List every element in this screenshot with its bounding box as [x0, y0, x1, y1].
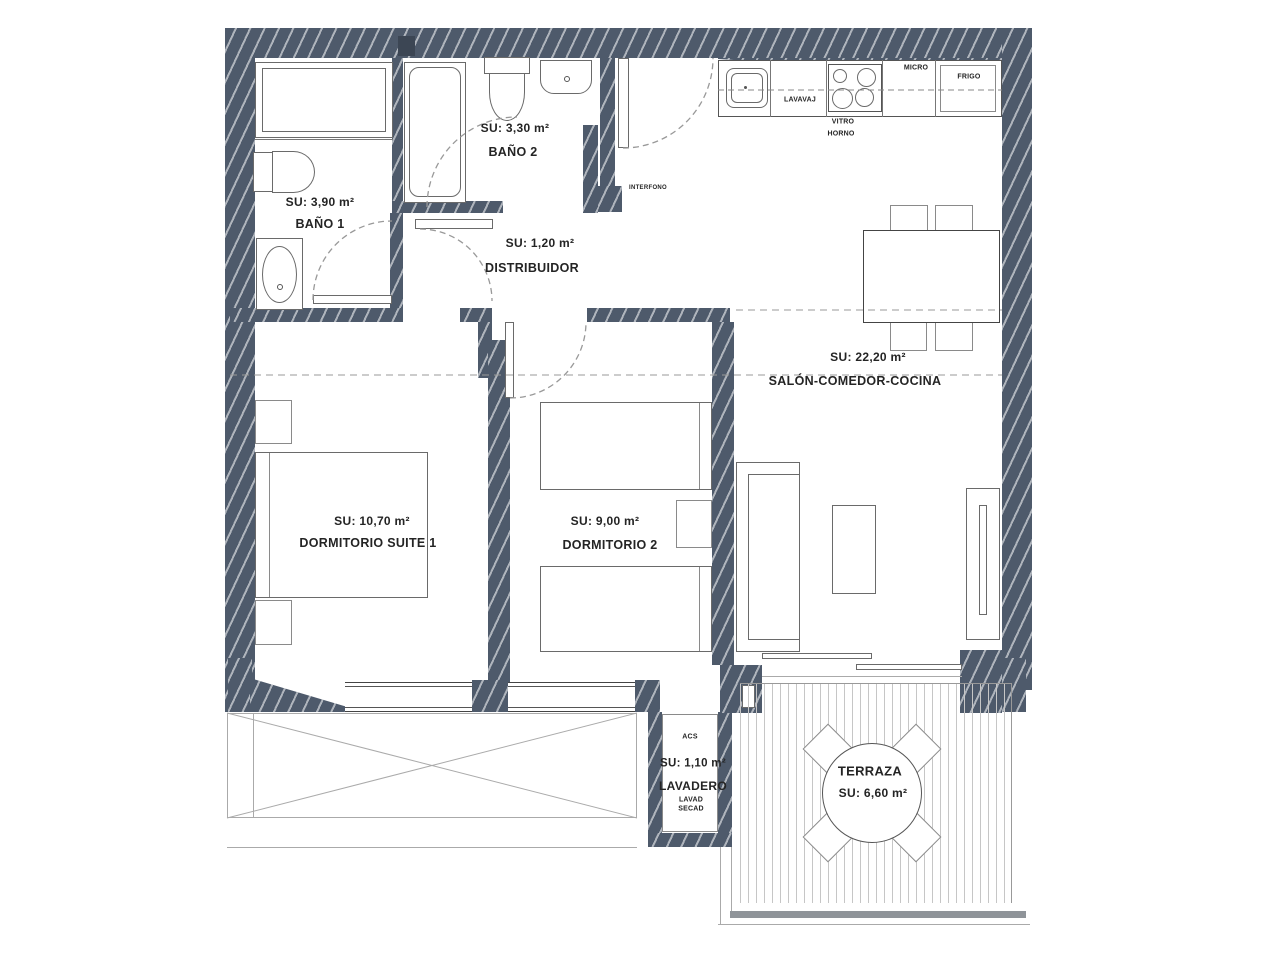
banyo1-name-label: BAÑO 1: [295, 218, 344, 231]
distribuidor-name-label: DISTRIBUIDOR: [485, 262, 579, 275]
wall-lavadero-left: [648, 712, 662, 842]
door-leaf-dorm2: [505, 322, 514, 398]
door-arc-banyo1: [313, 221, 392, 300]
hob-burner: [855, 88, 874, 107]
window-dorm2: [508, 682, 635, 712]
door-arc-dorm2: [510, 322, 586, 398]
shower-basin: [409, 67, 461, 197]
wall-window-pillar: [472, 680, 508, 712]
wall-entry-divider: [600, 58, 615, 205]
sliding-door-panel-right: [856, 664, 962, 670]
hob-burner: [833, 69, 847, 83]
banyo1-shelf-line: [255, 139, 393, 140]
nightstand: [676, 500, 712, 548]
bed-single: [540, 566, 712, 652]
wall-top: [225, 28, 1032, 58]
washbasin2-drain: [564, 76, 570, 82]
floor-plan: SU: 3,90 m² BAÑO 1 SU: 3,30 m² BAÑO 2 SU…: [0, 0, 1280, 960]
terraza-area-label: SU: 6,60 m²: [839, 787, 908, 799]
wall-lavadero-right: [718, 712, 732, 842]
counter-divider: [882, 60, 883, 117]
wall-lavadero-bottom: [648, 833, 732, 847]
kitchen-frigo-label: FRIGO: [957, 74, 980, 81]
lavadero-area-label: SU: 1,10 m²: [660, 758, 726, 770]
wall-bottom-left-slope: [250, 678, 347, 712]
door-leaf-banyo1: [313, 295, 392, 304]
terraza-name-label: TERRAZA: [838, 765, 902, 778]
toilet-tank: [253, 152, 273, 192]
kitchen-sink-drain: [744, 86, 747, 89]
toilet2-bowl: [489, 73, 525, 121]
wall-dorm2-right: [712, 322, 734, 665]
nightstand: [255, 400, 292, 444]
lavadero-acs-label: ACS: [682, 734, 697, 741]
fridge: [940, 65, 996, 112]
wall-banyo-divider: [392, 58, 403, 203]
wall-top-bump: [398, 36, 415, 56]
lavadero-secad-label: SECAD: [678, 806, 704, 813]
kitchen-sink-basin: [731, 73, 763, 103]
bathtub-basin: [262, 68, 386, 132]
door-leaf-entrance: [618, 58, 629, 148]
salon-area-label: SU: 22,20 m²: [830, 351, 906, 363]
door-leaf-distribuidor: [415, 219, 493, 229]
banyo2-name-label: BAÑO 2: [488, 146, 537, 159]
kitchen-micro-label: MICRO: [904, 65, 928, 72]
crossed-area: [227, 713, 637, 818]
wall-window-pillar-2: [635, 680, 660, 712]
dorm2-area-label: SU: 9,00 m²: [571, 515, 640, 527]
dining-table: [863, 230, 1000, 323]
toilet-bowl: [272, 151, 315, 193]
terrace-border-thick: [730, 911, 1026, 918]
wall-left: [225, 28, 255, 712]
wall-right: [1002, 28, 1032, 690]
toilet2-tank: [484, 57, 530, 74]
nightstand: [255, 600, 292, 645]
door-arc-entrance: [623, 58, 713, 148]
hob-burner: [832, 88, 853, 109]
tv-screen: [979, 505, 987, 615]
bed-single: [540, 402, 712, 490]
terrace-border-thin: [718, 924, 1030, 925]
dorm1-area-label: SU: 10,70 m²: [334, 515, 410, 527]
window-dorm1: [345, 682, 472, 712]
terrace-left-line-1: [720, 847, 721, 925]
door-arc-distribuidor: [420, 229, 492, 301]
lavadero-lavad-label: LAVAD: [679, 797, 703, 804]
counter-divider: [826, 60, 827, 117]
wall-bottom-left-pillar: [228, 658, 252, 712]
distribuidor-area-label: SU: 1,20 m²: [506, 237, 575, 249]
wall-banyo2-stub: [583, 125, 598, 213]
banyo2-area-label: SU: 3,30 m²: [481, 122, 550, 134]
kitchen-lavavaj-label: LAVAVAJ: [784, 97, 816, 104]
lavadero-cabinet: [662, 714, 718, 832]
crossed-area-divider: [253, 713, 254, 818]
kitchen-horno-label: HORNO: [827, 131, 854, 138]
sliding-door-sill: [762, 676, 962, 677]
wall-interfono-box: [597, 186, 622, 212]
dorm1-name-label: DORMITORIO SUITE 1: [299, 537, 436, 550]
wall-dorm1-top-stub: [460, 308, 492, 322]
counter-divider: [935, 60, 936, 117]
lower-ground-line: [227, 847, 637, 848]
kitchen-vitro-label: VITRO: [832, 119, 854, 126]
sofa-seat: [748, 474, 800, 640]
terrace-left-line-2: [731, 847, 732, 911]
counter-divider: [770, 60, 771, 117]
washbasin-bowl: [262, 246, 297, 303]
salon-name-label: SALÓN-COMEDOR-COCINA: [769, 375, 942, 388]
interfono-label: INTERFONO: [629, 185, 667, 191]
wall-banyo1-jamb: [390, 213, 403, 322]
washbasin-drain: [277, 284, 283, 290]
hob-burner: [857, 68, 876, 87]
wall-dorm1-top: [230, 308, 403, 322]
coffee-table: [832, 505, 876, 594]
dorm2-name-label: DORMITORIO 2: [562, 539, 657, 552]
lavadero-name-label: LAVADERO: [659, 780, 727, 792]
sliding-door-panel-left: [762, 653, 872, 659]
wall-dorm2-top: [587, 308, 730, 322]
banyo1-area-label: SU: 3,90 m²: [286, 196, 355, 208]
